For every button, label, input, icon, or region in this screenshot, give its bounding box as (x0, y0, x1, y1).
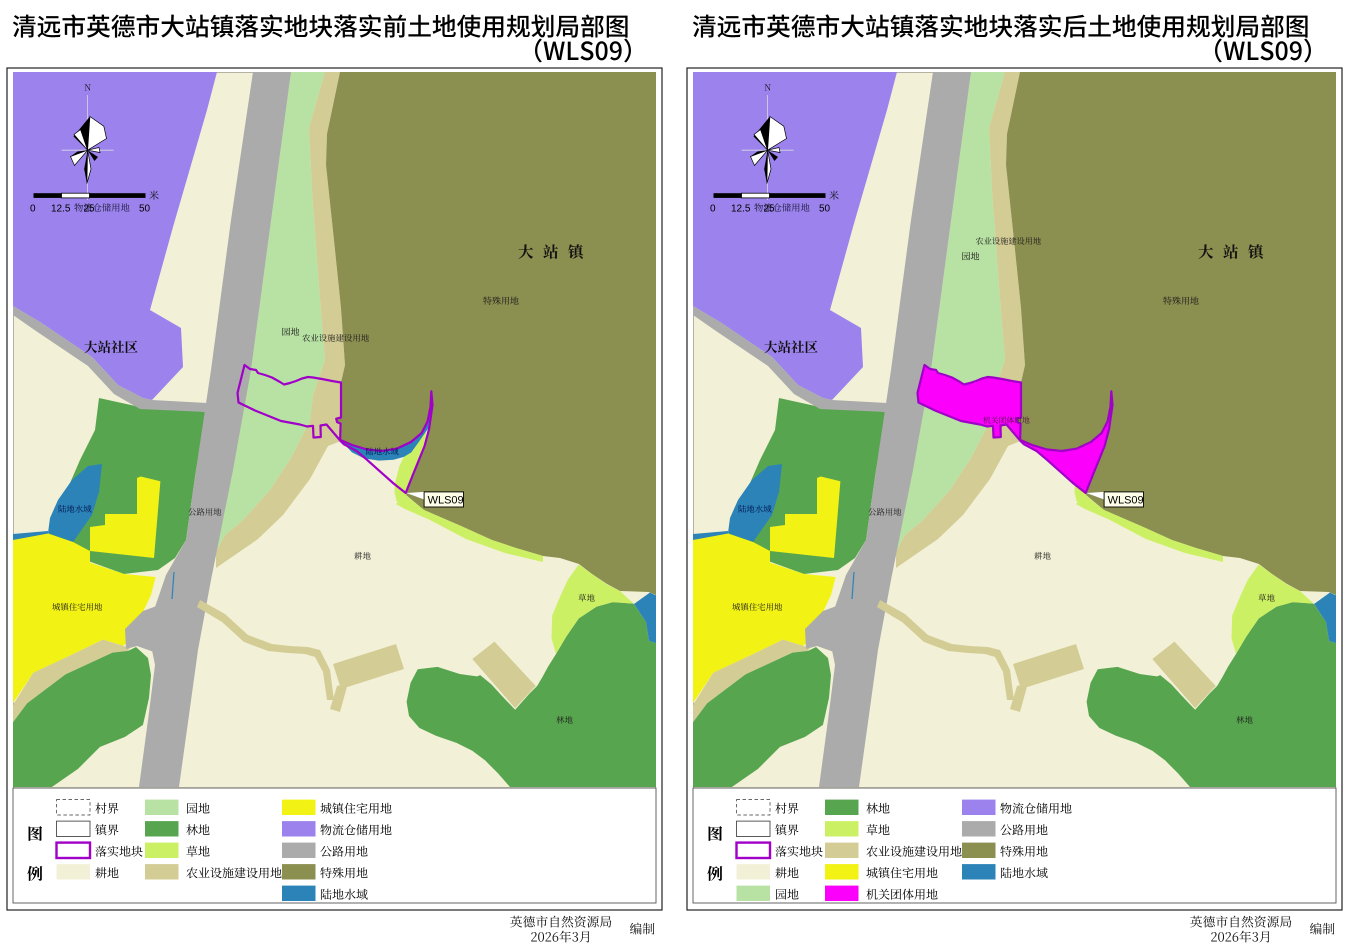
svg-text:WLS09: WLS09 (428, 494, 464, 506)
svg-text:25: 25 (764, 204, 776, 215)
svg-text:12.5: 12.5 (731, 204, 751, 215)
svg-text:WLS09: WLS09 (1108, 494, 1144, 506)
svg-text:0: 0 (710, 204, 716, 215)
svg-text:0: 0 (30, 204, 36, 215)
svg-text:25: 25 (84, 204, 96, 215)
svg-text:50: 50 (139, 204, 151, 215)
svg-text:50: 50 (819, 204, 831, 215)
svg-text:12.5: 12.5 (51, 204, 71, 215)
